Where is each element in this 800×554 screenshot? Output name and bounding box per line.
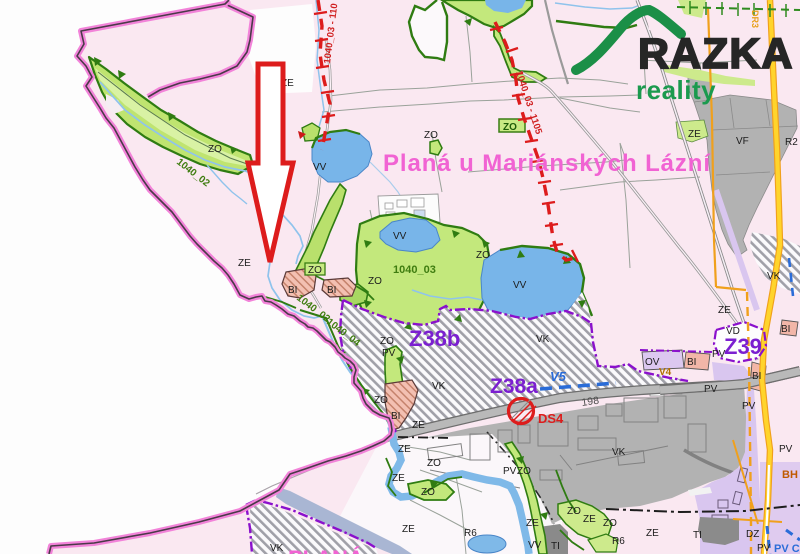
svg-text:VK: VK [270, 543, 284, 554]
svg-text:ZE: ZE [583, 514, 596, 525]
svg-text:TI: TI [693, 530, 702, 541]
svg-text:ZE: ZE [526, 518, 539, 529]
svg-text:ZE: ZE [238, 258, 251, 269]
svg-text:ZO: ZO [421, 487, 435, 498]
svg-text:ZO: ZO [427, 458, 441, 469]
svg-text:PLANÁ: PLANÁ [288, 546, 364, 554]
svg-text:VV: VV [513, 280, 527, 291]
svg-text:VK: VK [612, 447, 626, 458]
svg-text:ZO: ZO [308, 265, 322, 276]
svg-text:V5: V5 [550, 369, 567, 384]
svg-text:ZO: ZO [476, 250, 490, 261]
svg-text:BI: BI [288, 285, 297, 296]
svg-text:DR3: DR3 [750, 10, 760, 28]
svg-text:VF: VF [736, 136, 749, 147]
svg-text:ZO: ZO [380, 336, 394, 347]
svg-text:PV: PV [779, 444, 793, 455]
svg-text:Planá u Mariánských Lázní: Planá u Mariánských Lázní [383, 150, 711, 177]
svg-text:V4: V4 [659, 367, 672, 378]
svg-text:ZO: ZO [567, 506, 581, 517]
svg-text:ZE: ZE [412, 420, 425, 431]
svg-text:reality: reality [636, 75, 716, 105]
svg-text:1040_03: 1040_03 [393, 264, 436, 276]
svg-text:VK: VK [536, 334, 550, 345]
svg-text:ZE: ZE [718, 305, 731, 316]
svg-text:R2: R2 [785, 137, 798, 148]
svg-text:ZO: ZO [424, 130, 438, 141]
svg-text:VV: VV [313, 162, 327, 173]
svg-text:Z38a: Z38a [490, 375, 538, 398]
svg-text:VK: VK [432, 381, 446, 392]
svg-text:PV: PV [382, 348, 396, 359]
svg-text:ZO: ZO [374, 395, 388, 406]
svg-text:ZE: ZE [398, 444, 411, 455]
svg-text:BI: BI [687, 357, 696, 368]
svg-text:TI: TI [551, 541, 560, 552]
svg-text:ZO: ZO [517, 466, 531, 477]
svg-text:ZE: ZE [402, 524, 415, 535]
svg-text:ZE: ZE [646, 528, 659, 539]
svg-text:BI: BI [752, 371, 761, 382]
svg-text:198: 198 [581, 395, 600, 409]
svg-text:R6: R6 [464, 528, 477, 539]
svg-text:RAZKA: RAZKA [638, 30, 793, 78]
svg-text:BI: BI [327, 285, 336, 296]
svg-text:Z38b: Z38b [409, 326, 460, 351]
svg-text:ZE: ZE [688, 129, 701, 140]
svg-text:VK: VK [767, 271, 781, 282]
svg-text:DZ: DZ [746, 529, 759, 540]
svg-text:ZE: ZE [392, 473, 405, 484]
svg-text:R6: R6 [612, 536, 625, 547]
svg-text:VV: VV [393, 231, 407, 242]
svg-text:BH: BH [782, 469, 798, 481]
svg-text:PV: PV [757, 543, 771, 554]
svg-text:Z39: Z39 [724, 334, 762, 359]
svg-text:OV: OV [645, 357, 660, 368]
svg-text:VV: VV [528, 540, 542, 551]
svg-text:DS4: DS4 [538, 411, 564, 426]
svg-text:ZO: ZO [503, 122, 517, 133]
svg-text:BI: BI [391, 411, 400, 422]
svg-text:ZO: ZO [603, 518, 617, 529]
svg-text:ZO: ZO [368, 276, 382, 287]
svg-text:BI: BI [781, 324, 790, 335]
svg-text:PV: PV [503, 466, 517, 477]
svg-text:PV: PV [704, 384, 718, 395]
svg-text:ZO: ZO [208, 144, 222, 155]
svg-text:PV C: PV C [774, 543, 800, 554]
svg-text:PV: PV [742, 401, 756, 412]
